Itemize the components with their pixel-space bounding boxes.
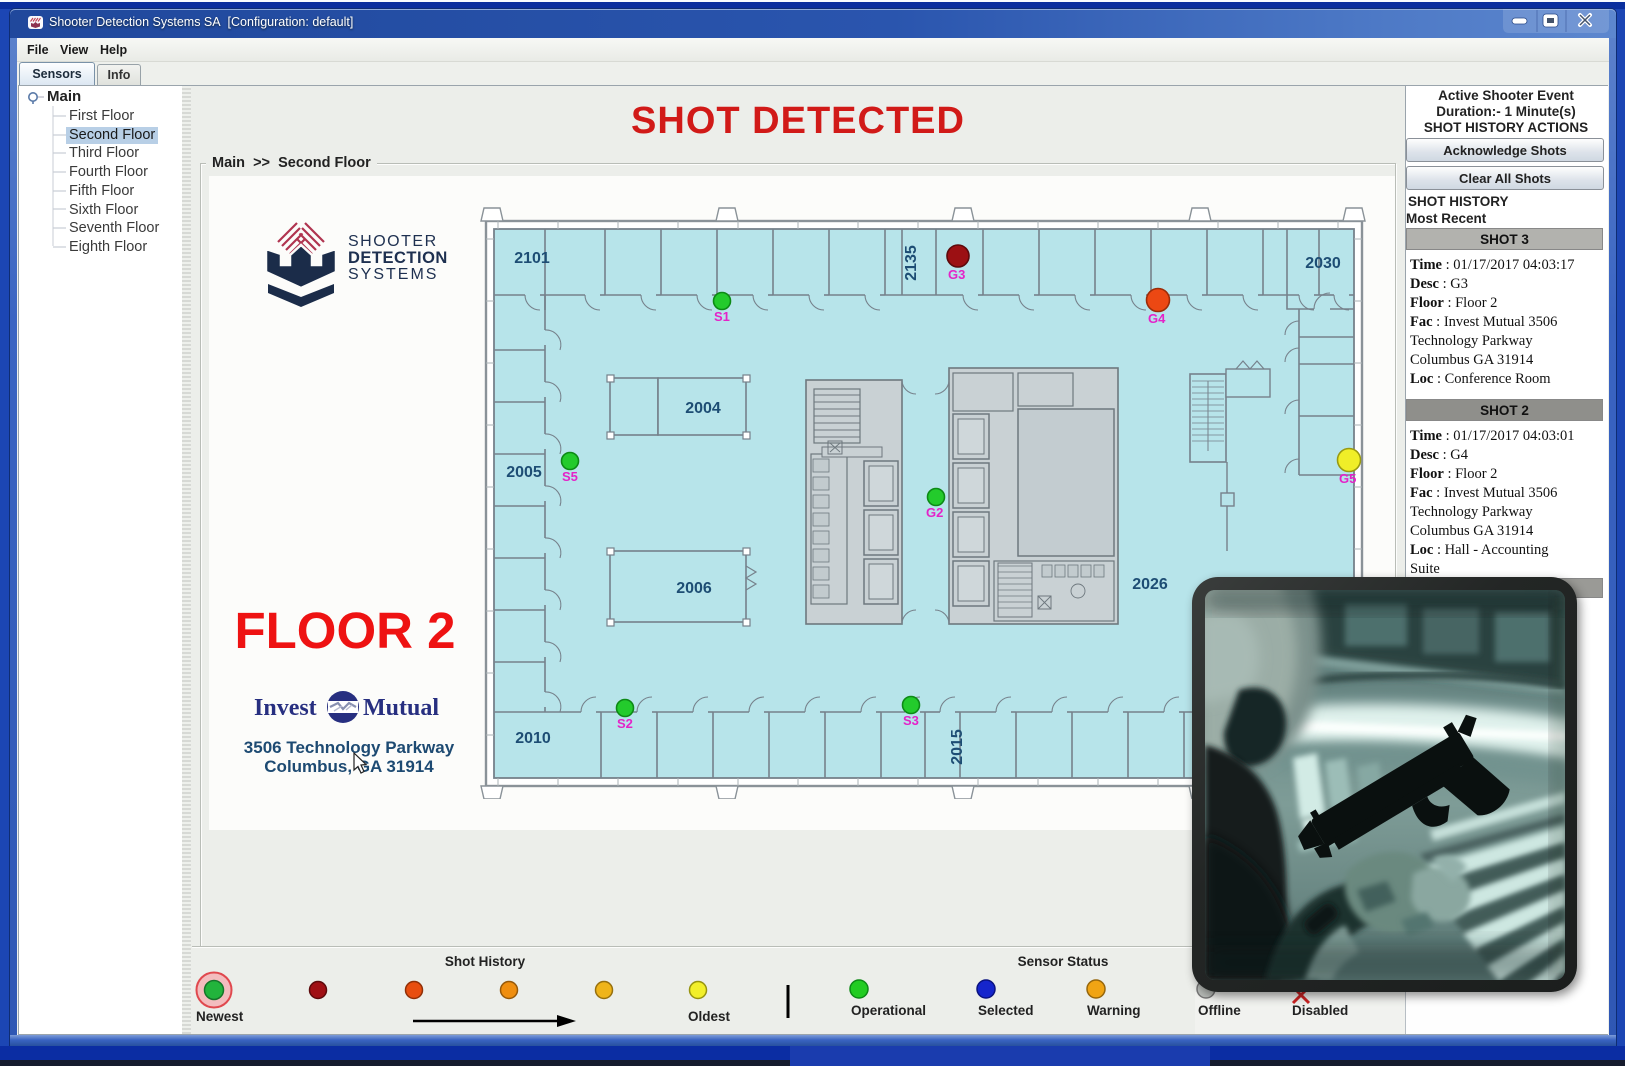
svg-text:2026: 2026 — [1132, 576, 1168, 593]
svg-text:2006: 2006 — [676, 580, 712, 597]
svg-text:G4: G4 — [1148, 311, 1166, 326]
svg-text:2004: 2004 — [685, 400, 721, 417]
svg-text:G5: G5 — [1339, 471, 1356, 486]
svg-text:2005: 2005 — [506, 464, 542, 481]
svg-text:2101: 2101 — [514, 250, 550, 267]
svg-text:Mutual: Mutual — [363, 695, 439, 721]
svg-text:S1: S1 — [714, 309, 730, 324]
svg-text:2015: 2015 — [949, 729, 966, 765]
svg-text:Invest: Invest — [254, 695, 317, 721]
svg-text:2030: 2030 — [1305, 255, 1341, 272]
svg-text:2010: 2010 — [515, 730, 551, 747]
svg-text:G3: G3 — [948, 267, 965, 282]
svg-text:S2: S2 — [617, 716, 633, 731]
svg-text:2135: 2135 — [903, 245, 920, 281]
svg-text:S5: S5 — [562, 469, 578, 484]
svg-text:G2: G2 — [926, 505, 943, 520]
svg-text:S3: S3 — [903, 713, 919, 728]
